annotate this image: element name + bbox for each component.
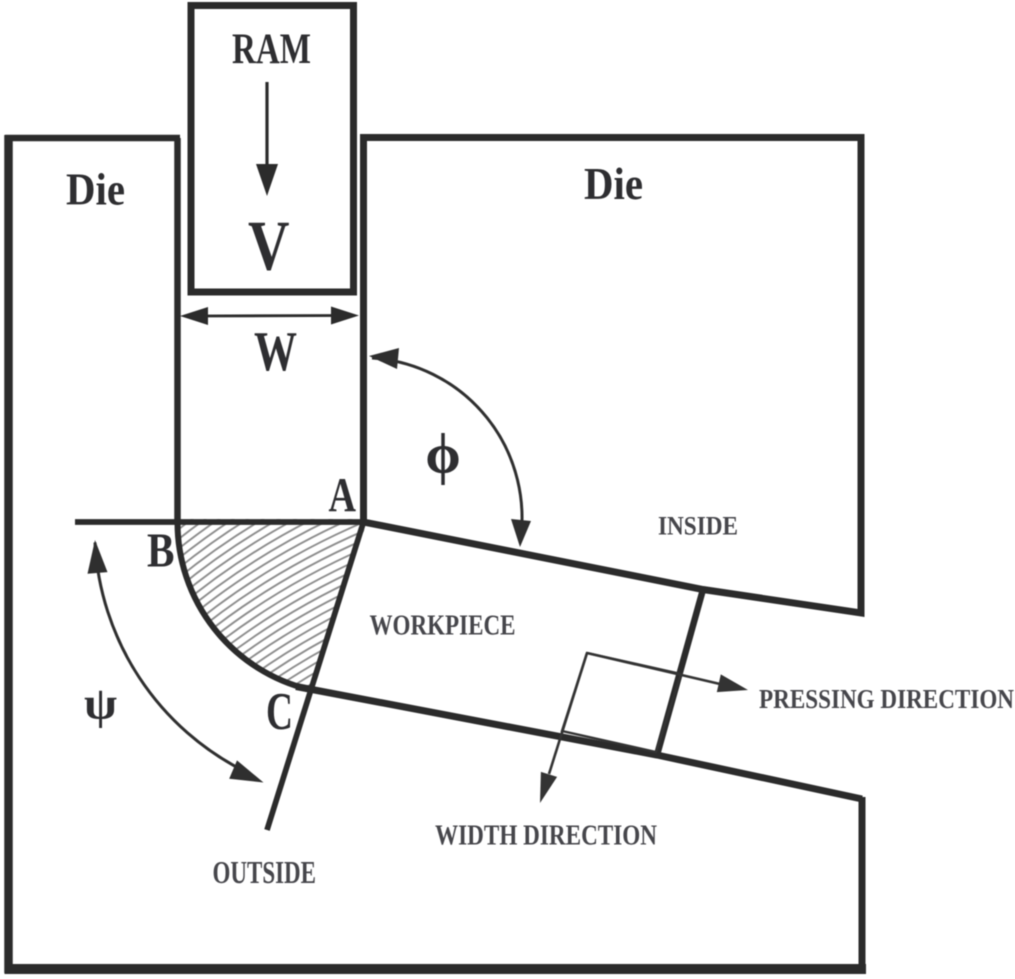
svg-text:V: V — [248, 208, 290, 286]
svg-text:INSIDE: INSIDE — [658, 512, 738, 541]
svg-text:C: C — [266, 683, 293, 741]
svg-text:WORKPIECE: WORKPIECE — [370, 611, 516, 642]
svg-text:A: A — [329, 467, 357, 522]
svg-text:W: W — [254, 321, 297, 383]
svg-text:Die: Die — [66, 164, 125, 215]
svg-text:ϕ: ϕ — [425, 423, 461, 486]
svg-text:WIDTH DIRECTION: WIDTH DIRECTION — [435, 821, 657, 852]
svg-text:ψ: ψ — [84, 678, 117, 729]
svg-text:Die: Die — [584, 158, 643, 209]
svg-text:RAM: RAM — [232, 26, 311, 73]
svg-text:B: B — [147, 523, 175, 578]
svg-text:PRESSING DIRECTION: PRESSING DIRECTION — [759, 684, 1014, 714]
svg-text:OUTSIDE: OUTSIDE — [213, 854, 317, 890]
